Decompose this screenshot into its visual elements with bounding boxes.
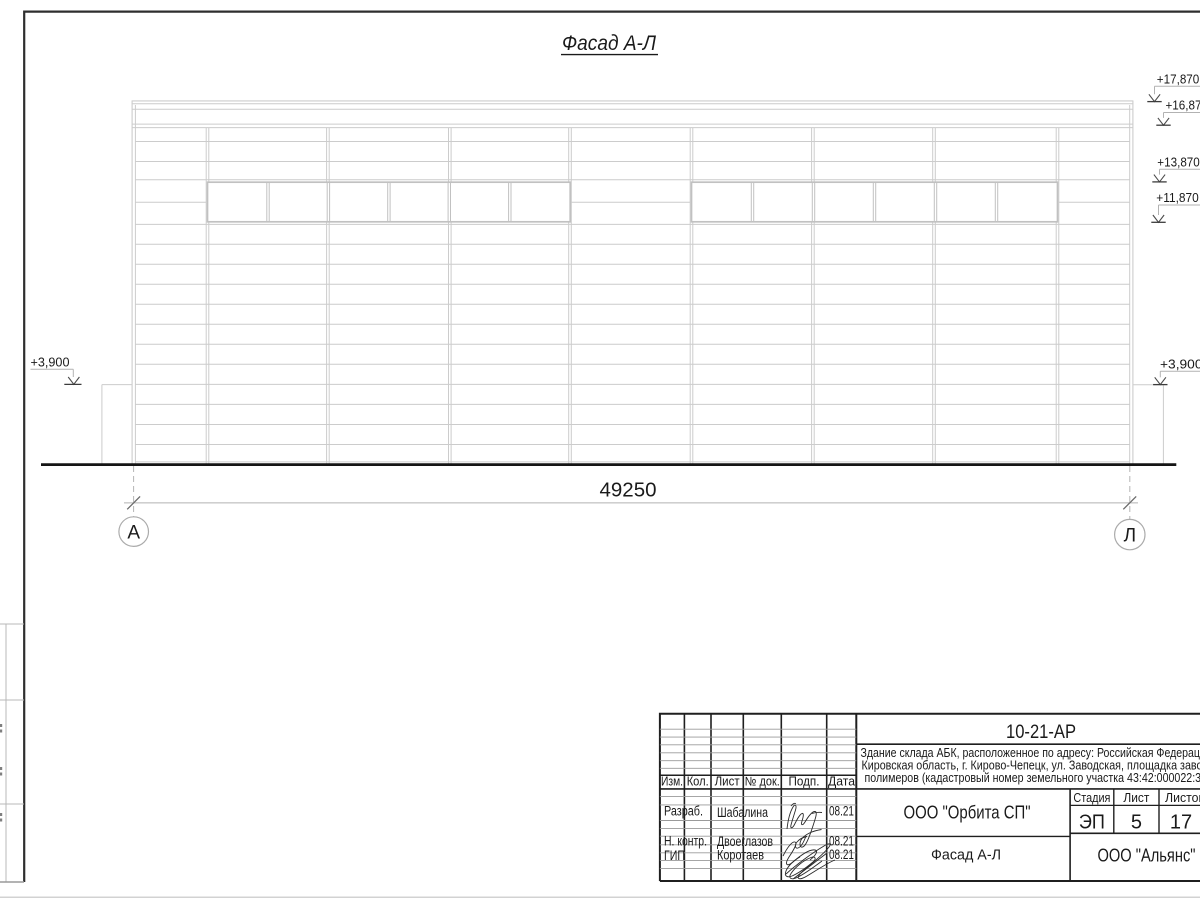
svg-text:Коротаев: Коротаев	[717, 848, 764, 863]
svg-text:№ док.: № док.	[745, 775, 780, 789]
svg-text:Изм.: Изм.	[661, 775, 683, 789]
svg-text:+16,870: +16,870	[1166, 99, 1200, 113]
svg-text:ООО "Альянс": ООО "Альянс"	[1098, 845, 1196, 866]
svg-text:Лист: Лист	[715, 775, 740, 789]
svg-text:ГИП: ГИП	[664, 848, 685, 863]
svg-text:+3,900: +3,900	[31, 355, 70, 369]
svg-text:Листов: Листов	[1165, 790, 1200, 805]
svg-text:5: 5	[1131, 812, 1142, 834]
svg-text:08.21: 08.21	[829, 833, 854, 848]
svg-text:Разраб.: Разраб.	[664, 804, 703, 819]
svg-text:Стадия: Стадия	[1073, 790, 1110, 805]
svg-text:Шабалина: Шабалина	[717, 805, 768, 820]
svg-text:полимеров (кадастровый номер з: полимеров (кадастровый номер земельного …	[865, 771, 1200, 785]
svg-text:+11,870: +11,870	[1156, 191, 1199, 205]
svg-text:+3,900: +3,900	[1160, 357, 1200, 371]
svg-text:Кол.: Кол.	[687, 775, 709, 789]
svg-text:08.21: 08.21	[829, 847, 854, 862]
svg-text:08.21: 08.21	[829, 804, 854, 819]
svg-text:17: 17	[1170, 812, 1192, 834]
svg-text:Л: Л	[1124, 526, 1136, 547]
svg-text:А: А	[127, 522, 140, 543]
svg-text:Дата: Дата	[828, 775, 855, 789]
svg-text:Фасад А-Л: Фасад А-Л	[931, 847, 1001, 863]
svg-text:Н. контр.: Н. контр.	[664, 834, 707, 849]
svg-text:Фасад А-Л: Фасад А-Л	[562, 32, 657, 55]
svg-text:49250: 49250	[599, 478, 656, 501]
svg-text:+13,870: +13,870	[1157, 155, 1200, 169]
svg-text:Двоеглазов: Двоеглазов	[717, 834, 773, 849]
svg-text:+17,870: +17,870	[1157, 73, 1200, 87]
svg-text:Лист: Лист	[1123, 790, 1149, 805]
svg-text:Подп.: Подп.	[789, 775, 820, 789]
svg-text:10-21-АР: 10-21-АР	[1006, 722, 1076, 743]
svg-text:ЭП: ЭП	[1079, 812, 1105, 834]
svg-text:ООО "Орбита СП": ООО "Орбита СП"	[904, 802, 1031, 823]
